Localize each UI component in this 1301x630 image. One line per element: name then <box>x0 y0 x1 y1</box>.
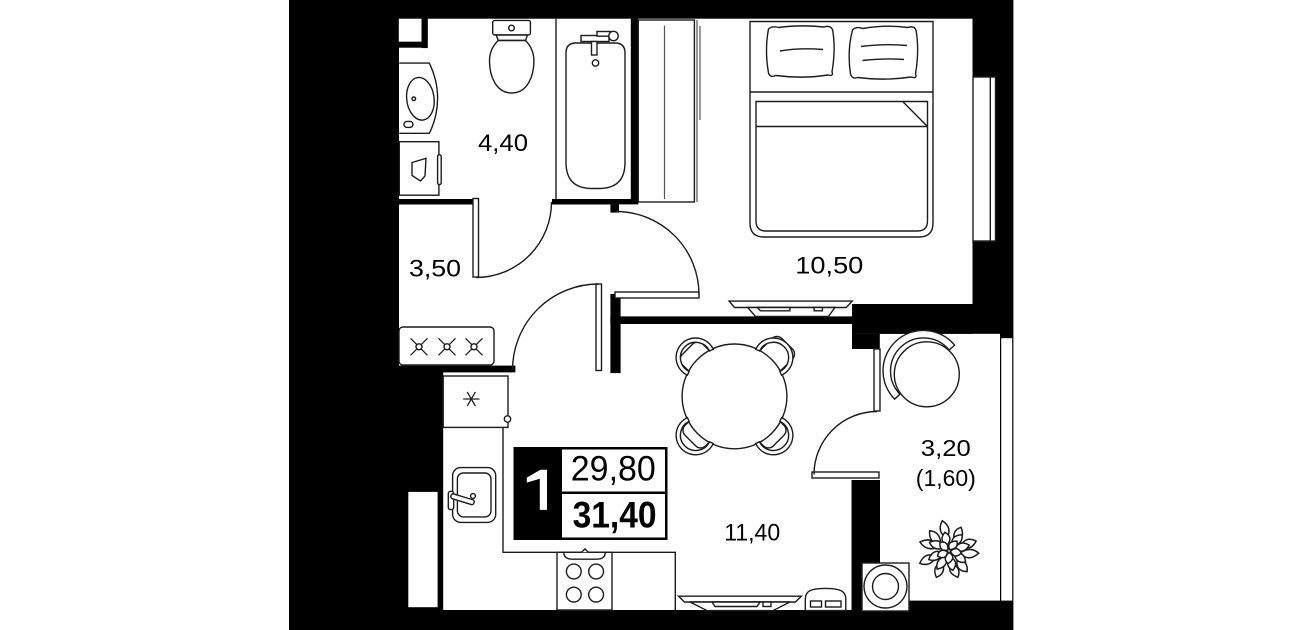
svg-text:10,50: 10,50 <box>795 253 863 280</box>
svg-text:11,40: 11,40 <box>724 520 780 547</box>
svg-text:3,20: 3,20 <box>921 435 971 461</box>
svg-text:4,40: 4,40 <box>478 130 528 157</box>
svg-text:(1,60): (1,60) <box>916 465 976 491</box>
svg-text:3,50: 3,50 <box>409 255 461 282</box>
svg-text:31,40: 31,40 <box>573 495 657 536</box>
svg-text:29,80: 29,80 <box>571 450 656 489</box>
